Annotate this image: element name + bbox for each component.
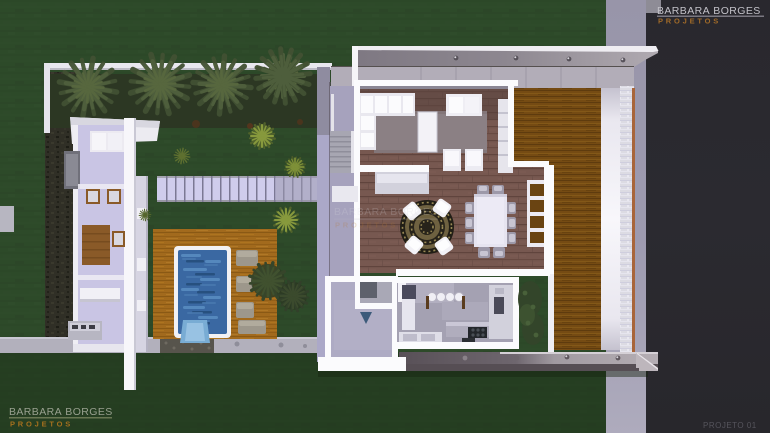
svg-text:PROJETO 01: PROJETO 01 bbox=[703, 421, 757, 430]
svg-text:BARBARA BORGES: BARBARA BORGES bbox=[657, 5, 761, 17]
svg-text:PROJETOS: PROJETOS bbox=[658, 17, 721, 26]
svg-text:BARBARA BORGES: BARBARA BORGES bbox=[334, 206, 438, 218]
svg-text:PROJETOS: PROJETOS bbox=[335, 221, 398, 230]
svg-text:PROJETOS: PROJETOS bbox=[10, 420, 73, 429]
svg-text:BARBARA BORGES: BARBARA BORGES bbox=[9, 406, 113, 418]
